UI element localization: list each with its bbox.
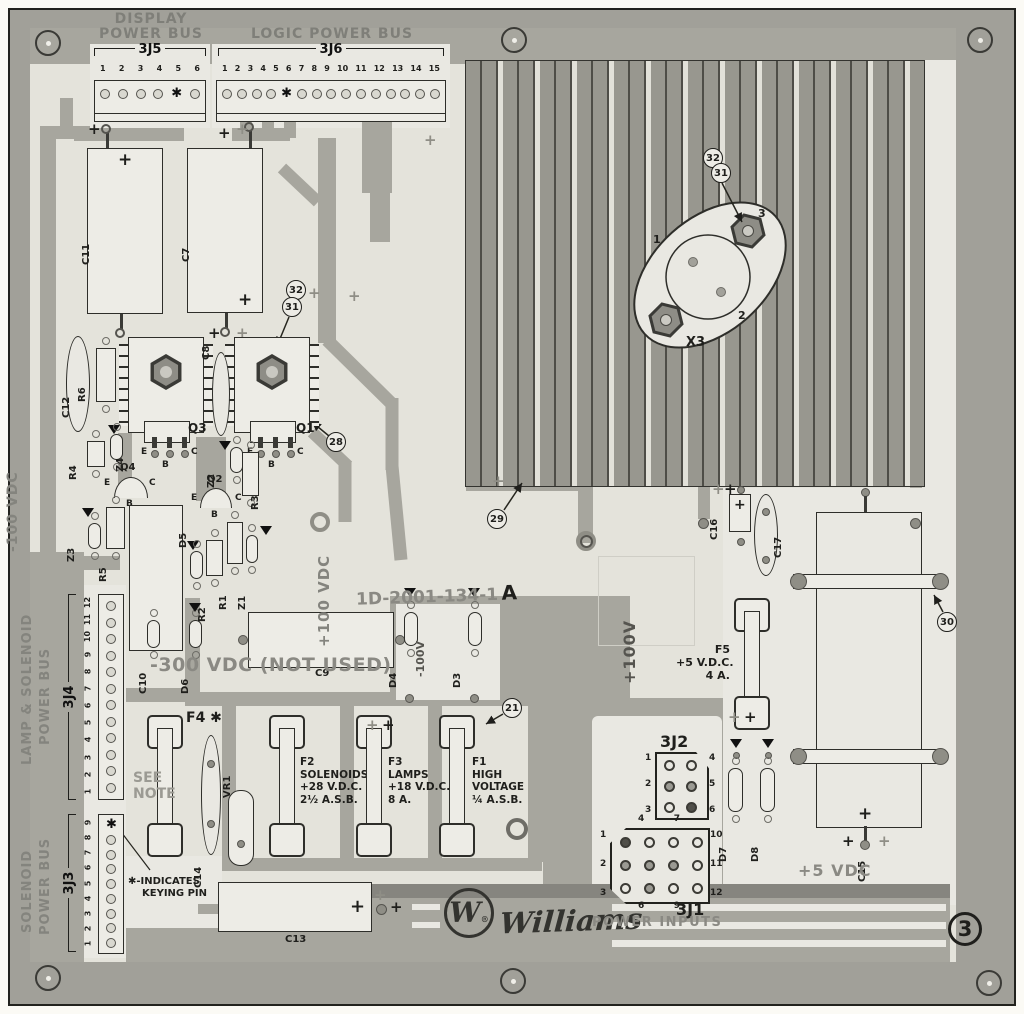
diode-d6 — [189, 620, 202, 648]
connector-3j1-right-numbers: 101112 — [710, 830, 723, 898]
zener-z1 — [246, 535, 258, 563]
jumper-bar — [793, 749, 943, 764]
pin-number: 5 — [83, 880, 92, 886]
ref-label-x3: X3 — [686, 336, 705, 351]
pin-number: 1 — [600, 830, 606, 840]
resistor-r1 — [227, 522, 243, 564]
ref-label-c17: C17 — [774, 537, 784, 558]
lamp-solenoid-bus-header: LAMP & SOLENOID — [21, 614, 34, 765]
registered-mark: ® — [481, 915, 489, 923]
lead-wire — [249, 130, 252, 148]
x3-flange — [606, 174, 813, 376]
pin-hole: ✱ — [106, 820, 117, 830]
pin-row: ✱ — [100, 89, 200, 99]
q1-pin-c: C — [297, 447, 304, 457]
ref-label-r2: R2 — [198, 607, 208, 622]
pin-number: 2 — [645, 779, 651, 789]
ref-label-vr1: VR1 — [223, 776, 233, 798]
pin-hole — [386, 89, 396, 99]
pin-number: 10 — [83, 631, 92, 642]
connector-3j4 — [98, 594, 124, 800]
pin-row: ✱ — [222, 89, 440, 99]
transistor-leg — [182, 437, 187, 448]
pin-hole — [692, 837, 703, 848]
x3-pin-1: 1 — [653, 234, 661, 247]
solder-pad — [115, 328, 125, 338]
connector-3j3: ✱ — [98, 814, 124, 954]
voltage-label-minus100v: -100V — [415, 641, 426, 677]
pin-hole — [106, 634, 116, 644]
pin-column — [106, 601, 116, 793]
diode-d7 — [728, 768, 743, 812]
lamp-solenoid-bus-header: POWER BUS — [39, 648, 52, 745]
fuse-f5-text: F5+5 V.D.C.4 A. — [676, 643, 730, 682]
fuse-f4-label: F4 ✱ — [186, 710, 222, 726]
pin-number: 4 — [157, 64, 163, 73]
solder-pad — [207, 760, 215, 768]
solder-pad — [287, 450, 295, 458]
pcb-layout-sheet: DISPLAY POWER BUS LOGIC POWER BUS 3J5 12… — [0, 0, 1024, 1014]
williams-w-mark: W — [449, 899, 480, 927]
voltage-label-minus100vdc: -100 VDC — [6, 471, 20, 552]
connector-3j2-label: 3J2 — [660, 733, 688, 751]
capacitor-c13 — [218, 882, 372, 932]
pin-hole — [371, 89, 381, 99]
pin-hole — [326, 89, 336, 99]
callout-31: 31 — [711, 163, 731, 183]
bracket-line — [346, 48, 444, 56]
pin-number: 4 — [709, 753, 715, 763]
pin-number: 2 — [235, 64, 241, 73]
ref-label-r3: R3 — [251, 495, 261, 510]
ref-label-z2: Z2 — [207, 474, 217, 488]
diode-polarity-mark — [762, 739, 774, 748]
resistor-r5 — [106, 507, 125, 549]
pin-hole — [664, 781, 675, 792]
pin-number: 1 — [645, 753, 651, 763]
pin-number: 3 — [248, 64, 254, 73]
connector-3j1-top-numbers: 47 — [638, 814, 680, 824]
pin-hole — [106, 684, 116, 694]
pin-hole — [668, 837, 679, 848]
pin-number: 5 — [709, 779, 715, 789]
pin-number: 12 — [83, 597, 92, 608]
diode-d3 — [468, 612, 482, 646]
sheet-number-badge: 3 — [948, 912, 982, 946]
pin-hole — [106, 717, 116, 727]
varistor-vr1 — [228, 790, 254, 866]
pin-hole — [668, 860, 679, 871]
transistor-leg — [167, 437, 172, 448]
pin-column: ✱ — [106, 820, 117, 948]
q3-pin-b: B — [162, 460, 169, 470]
mounting-hole — [501, 27, 527, 53]
pin-hole — [106, 835, 116, 845]
zener-z3 — [88, 523, 101, 549]
solder-pad — [101, 124, 111, 134]
ref-label-r5: R5 — [99, 567, 109, 582]
pin-hole — [341, 89, 351, 99]
pin-number: 12 — [374, 64, 385, 73]
pin-number: 7 — [83, 850, 92, 856]
pin-number: 14 — [410, 64, 421, 73]
pin-number: 10 — [710, 830, 723, 840]
pin-hole — [297, 89, 307, 99]
pin-hole — [692, 860, 703, 871]
header-line: POWER BUS — [92, 27, 210, 42]
pin-hole — [106, 864, 116, 874]
connector-3j2 — [655, 752, 709, 820]
pin-number: 1 — [83, 941, 92, 947]
jumper-end-pad — [932, 573, 949, 590]
callout-21: 21 — [502, 698, 522, 718]
pin-hole — [237, 89, 247, 99]
logic-power-bus-header: LOGIC POWER BUS — [214, 27, 450, 42]
pin-number: 4 — [83, 895, 92, 901]
solder-pad — [166, 450, 174, 458]
pin-number: 9 — [83, 651, 92, 657]
diode-polarity-mark — [730, 739, 742, 748]
solder-pad — [737, 538, 745, 546]
fuse-clip — [147, 823, 183, 857]
solenoid-bus-header: SOLENOID — [21, 850, 34, 933]
pin-hole — [106, 618, 116, 628]
pin-hole — [106, 667, 116, 677]
jumper-end-pad — [790, 748, 807, 765]
see-note-line: SEE — [133, 770, 176, 786]
pin-number: 6 — [638, 901, 644, 911]
lead-wire — [864, 496, 867, 512]
solder-pad — [470, 694, 479, 703]
pin-hole — [106, 938, 116, 948]
pin-number: 12 — [710, 888, 723, 898]
pin-number: 6 — [83, 865, 92, 871]
pin-hole — [106, 766, 116, 776]
x3-pin-2: 2 — [738, 310, 746, 323]
pin-hole — [190, 89, 200, 99]
transistor-leg — [152, 437, 157, 448]
pin-hole — [356, 89, 366, 99]
q1-mounting-nut — [254, 354, 290, 390]
connector-3j4-label: 3J4 — [65, 686, 75, 709]
voltage-label-minus300vdc: -300 VDC (NOT USED) — [150, 655, 392, 677]
solder-pad — [220, 327, 230, 337]
connector-3j2-right-numbers: 456 — [709, 753, 715, 815]
solder-pad — [405, 694, 414, 703]
connector-edge-line — [217, 113, 445, 114]
part-number-text: 1D-2001-134-1 — [356, 585, 499, 610]
pin-number: 13 — [392, 64, 403, 73]
pin-number: 5 — [176, 64, 182, 73]
ref-label-c8: C8 — [202, 346, 212, 360]
solder-pad — [151, 450, 159, 458]
pin-hole — [106, 894, 116, 904]
q2-pin-b: B — [211, 510, 218, 520]
pin-number: 2 — [119, 64, 125, 73]
mounting-hole — [976, 970, 1002, 996]
bracket-line — [94, 48, 135, 56]
pin-hole — [136, 89, 146, 99]
copper-trace — [198, 904, 220, 914]
pin-number: 15 — [429, 64, 440, 73]
connector-edge-line — [95, 113, 205, 114]
resistor-r2 — [206, 540, 223, 576]
diode-d8 — [760, 768, 775, 812]
capacitor-c14 — [201, 735, 221, 855]
resistor-r3 — [242, 452, 259, 496]
ref-label-r4: R4 — [69, 465, 79, 480]
q1-pin-b: B — [268, 460, 275, 470]
pin-hole — [106, 601, 116, 611]
pin-number: 2 — [83, 771, 92, 777]
see-note-text: SEENOTE — [133, 770, 176, 802]
voltage-label-plus100vdc: +100 VDC — [317, 555, 332, 647]
q4-pin-c: C — [149, 478, 156, 488]
pin-number: 6 — [83, 703, 92, 709]
solder-pad — [737, 486, 745, 494]
revision-letter: A — [501, 580, 517, 605]
pin-hole — [106, 909, 116, 919]
pin-hole — [430, 89, 440, 99]
pin-hole: ✱ — [281, 89, 292, 99]
transistor-leg — [258, 437, 263, 448]
pin-number: 4 — [638, 814, 644, 824]
solder-pad — [762, 508, 770, 516]
pin-hole — [106, 651, 116, 661]
connector-3j5-bracket: 3J5 — [94, 48, 206, 56]
connector-3j1 — [610, 828, 710, 904]
pin-hole — [118, 89, 128, 99]
pin-number: 8 — [83, 668, 92, 674]
header-line: DISPLAY — [92, 12, 210, 27]
pin-hole — [153, 89, 163, 99]
fuse-text-line: +5 V.D.C. — [676, 656, 730, 669]
solder-pad — [860, 840, 870, 850]
keying-note-line: ✱-INDICATES — [128, 876, 207, 888]
pin-hole — [620, 860, 631, 871]
pin-number: 6 — [194, 64, 200, 73]
capacitor-c8 — [212, 352, 230, 436]
q4-pin-e: E — [104, 478, 110, 488]
solder-pad — [376, 904, 387, 915]
pin-number: 4 — [83, 737, 92, 743]
pin-hole — [106, 700, 116, 710]
callout-30: 30 — [937, 612, 957, 632]
connector-3j6-bracket: 3J6 — [218, 48, 444, 56]
fuse-text-line: HIGH — [472, 769, 524, 782]
q3-mounting-nut — [148, 354, 184, 390]
solder-pad — [181, 450, 189, 458]
pin-number: 5 — [273, 64, 279, 73]
fuse-text-line: VOLTAGE — [472, 781, 524, 794]
mounting-hole — [35, 30, 61, 56]
power-resistor-bracket — [816, 512, 922, 828]
transistor-q3-heatsink — [128, 337, 204, 433]
pin-hole — [106, 750, 116, 760]
fuse-f1 — [438, 715, 476, 857]
bracket-line — [218, 48, 316, 56]
display-power-bus-header: DISPLAY POWER BUS — [92, 12, 210, 42]
pin-number: 8 — [83, 835, 92, 841]
pin-hole — [106, 783, 116, 793]
pin-number: 3 — [83, 910, 92, 916]
ref-label-c10: C10 — [139, 673, 149, 694]
ref-label-c13: C13 — [285, 934, 306, 946]
ref-label-r6: R6 — [78, 387, 88, 402]
pin-number: 6 — [709, 805, 715, 815]
callout-29: 29 — [487, 509, 507, 529]
pin-hole — [664, 802, 675, 813]
pin-number: 1 — [100, 64, 106, 73]
via-pad — [506, 818, 528, 840]
voltage-label-plus5vdc: +5 VDC — [798, 862, 872, 880]
see-note-line: NOTE — [133, 786, 176, 802]
zener-z4 — [110, 434, 123, 460]
q3-pin-c: C — [191, 447, 198, 457]
solder-pad — [207, 820, 215, 828]
ref-label-d7: D7 — [719, 847, 729, 862]
via-pad — [310, 512, 330, 532]
resistor-r4 — [87, 441, 105, 467]
solder-pad — [580, 535, 593, 548]
connector-3j6-pin-numbers: 123456789101112131415 — [222, 64, 440, 73]
pin-number: 5 — [83, 720, 92, 726]
pin-number: 3 — [83, 754, 92, 760]
pin-hole — [106, 850, 116, 860]
pin-number: 11 — [83, 614, 92, 625]
solenoid-bus-header: POWER BUS — [39, 838, 52, 935]
ref-label-z3: Z3 — [67, 548, 77, 562]
ref-label-z4: Z4 — [116, 458, 126, 472]
connector-3j3-label: 3J3 — [65, 872, 75, 895]
resistor-r6 — [96, 348, 116, 402]
mounting-hole — [35, 965, 61, 991]
pin-hole — [644, 883, 655, 894]
connector-3j6: ✱ — [216, 80, 446, 122]
pin-number: 4 — [260, 64, 266, 73]
ref-label-q1: Q1 — [296, 422, 315, 436]
x3-pin-3: 3 — [758, 208, 766, 221]
keying-note-line: KEYING PIN — [142, 888, 207, 900]
solder-pad — [238, 635, 248, 645]
pin-hole — [644, 837, 655, 848]
connector-3j5: ✱ — [94, 80, 206, 122]
connector-3j3-bracket: 3J3 — [68, 814, 76, 952]
pin-hole — [400, 89, 410, 99]
pin-hole — [686, 802, 697, 813]
pin-number: 11 — [355, 64, 366, 73]
pin-hole — [100, 89, 110, 99]
diode-d5 — [190, 551, 203, 579]
ref-label-d3: D3 — [453, 673, 463, 688]
ref-label-z1: Z1 — [238, 596, 248, 610]
voltage-label-plus100v: +100V — [622, 620, 638, 684]
pin-number: 9 — [324, 64, 330, 73]
connector-3j3-pin-numbers: 987654321 — [82, 818, 94, 948]
diode-polarity-mark — [219, 441, 231, 450]
bracket-line — [68, 594, 76, 682]
pin-hole — [664, 760, 675, 771]
pin-number: 2 — [600, 859, 606, 869]
fuse-clip — [439, 823, 475, 857]
pin-hole — [222, 89, 232, 99]
jumper-end-pad — [790, 573, 807, 590]
connector-3j5-pin-numbers: 123456 — [100, 64, 200, 73]
pin-hole — [686, 781, 697, 792]
pin-number: 7 — [674, 814, 680, 824]
bracket-line — [68, 814, 76, 868]
transistor-leg — [288, 437, 293, 448]
connector-3j5-label: 3J5 — [139, 45, 162, 55]
q3-pin-e: E — [141, 447, 147, 457]
pin-number: 3 — [600, 888, 606, 898]
bracket-line — [165, 48, 206, 56]
ref-label-q3: Q3 — [188, 422, 207, 436]
pin-number: 7 — [83, 686, 92, 692]
ref-label-c12: C12 — [62, 397, 72, 418]
pin-number: 1 — [83, 789, 92, 795]
fuse-text-line: ¼ A.S.B. — [472, 794, 524, 807]
connector-3j2-left-numbers: 123 — [645, 753, 651, 815]
capacitor-c10-lead — [147, 620, 160, 648]
pin-number: 2 — [83, 926, 92, 932]
pin-hole — [106, 879, 116, 889]
ref-label-c7: C7 — [182, 248, 192, 262]
connector-3j4-pin-numbers: 121110987654321 — [82, 598, 94, 796]
keying-pin-note: ✱-INDICATES KEYING PIN — [128, 876, 207, 899]
lead-wire — [106, 132, 109, 148]
pin-number: 7 — [299, 64, 305, 73]
pin-number: 8 — [311, 64, 317, 73]
callout-28: 28 — [326, 432, 346, 452]
pin-number: 3 — [138, 64, 144, 73]
solder-pad — [910, 518, 921, 529]
solder-pad — [237, 840, 245, 848]
pin-hole — [415, 89, 425, 99]
ref-label-c11: C11 — [82, 244, 92, 265]
bracket-line — [68, 898, 76, 952]
capacitor-c11 — [87, 148, 163, 314]
ref-label-d6: D6 — [181, 679, 191, 694]
pin-number: 10 — [337, 64, 348, 73]
connector-3j1-left-numbers: 123 — [600, 830, 606, 898]
pin-hole — [668, 883, 679, 894]
transistor-q1-heatsink — [234, 337, 310, 433]
fuse-text-line: F1 — [472, 756, 524, 769]
solder-pad — [698, 518, 709, 529]
mounting-hole — [500, 968, 526, 994]
solder-pad — [762, 556, 770, 564]
connector-3j6-label: 3J6 — [320, 45, 343, 55]
ref-label-d8: D8 — [751, 847, 761, 862]
fuse-clip — [356, 823, 392, 857]
pin-hole — [692, 883, 703, 894]
pin-number: 1 — [222, 64, 228, 73]
fuse-text-line: F5 — [676, 643, 730, 656]
connector-3j4-bracket: 3J4 — [68, 594, 76, 800]
pin-hole: ✱ — [171, 89, 182, 99]
jumper-bar — [793, 574, 943, 589]
mounting-hole — [967, 27, 993, 53]
fuse-clip — [269, 823, 305, 857]
ref-label-r1: R1 — [219, 595, 229, 610]
q2-pin-c: C — [235, 493, 242, 503]
pin-number: 9 — [83, 820, 92, 826]
fuse-f1-text: F1HIGHVOLTAGE¼ A.S.B. — [472, 756, 524, 806]
q2-pin-e: E — [191, 493, 197, 503]
pin-hole — [620, 837, 631, 848]
pin-hole — [106, 923, 116, 933]
